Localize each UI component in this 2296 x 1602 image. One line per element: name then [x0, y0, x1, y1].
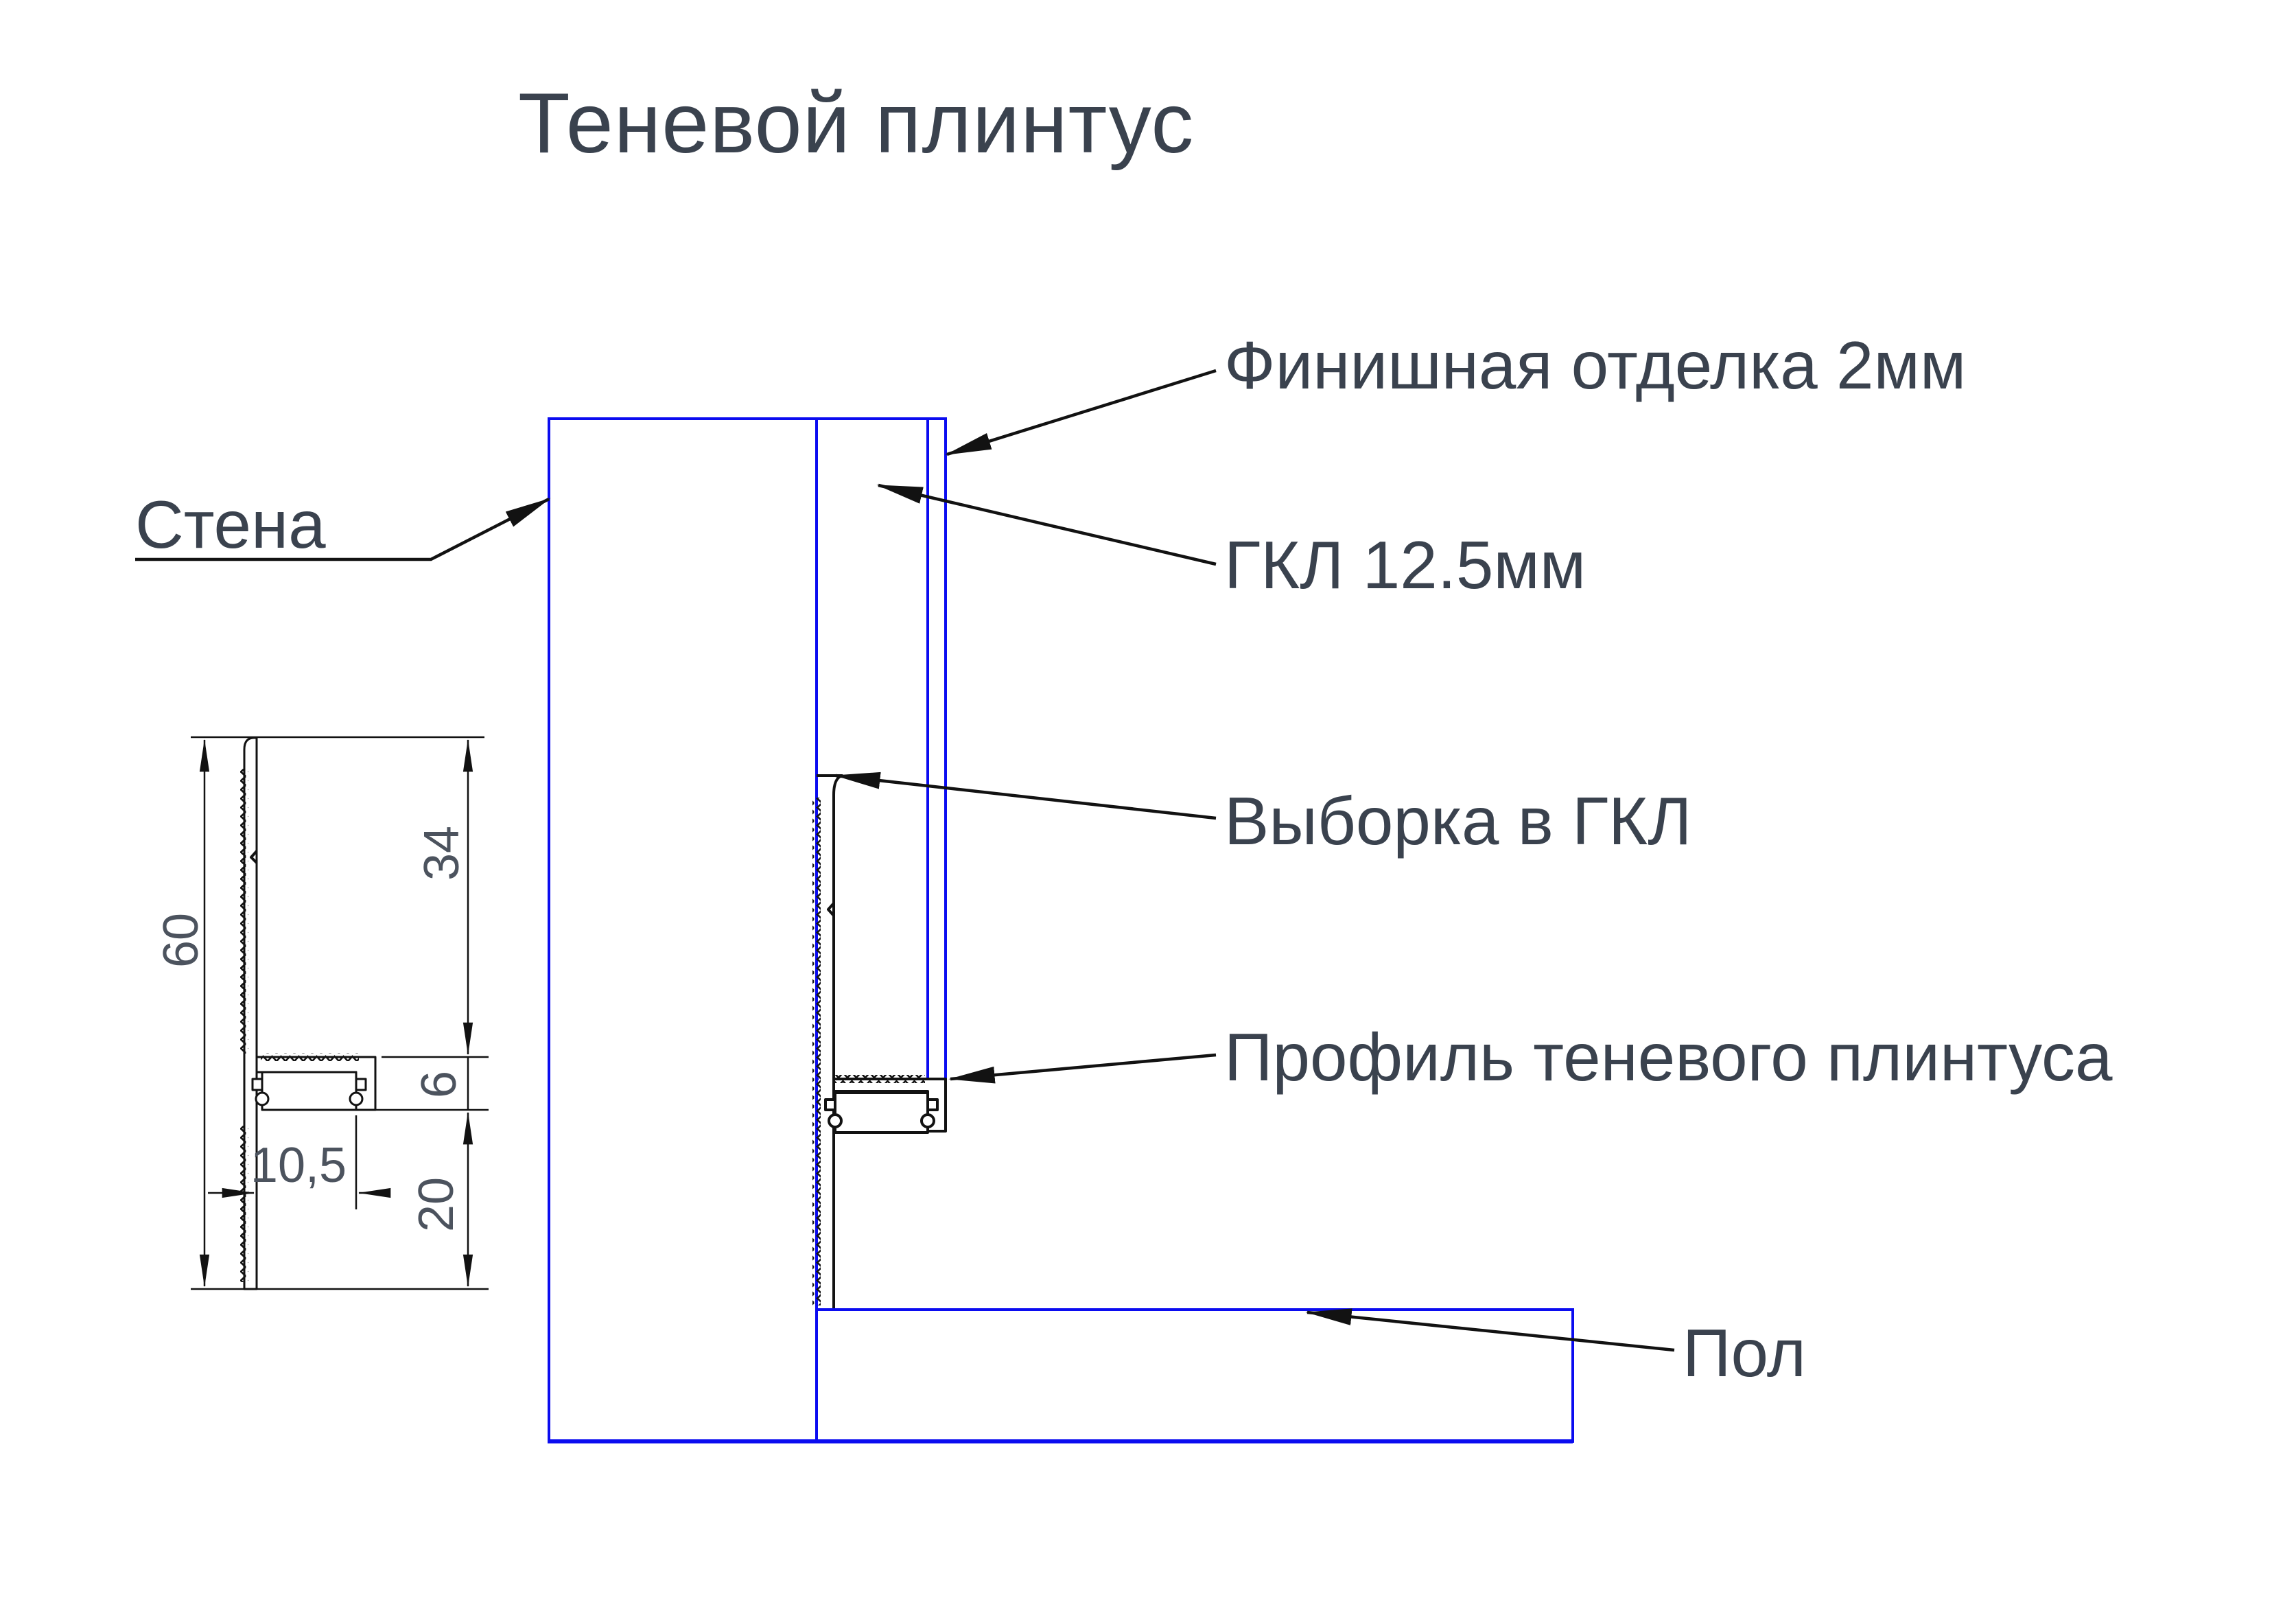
detail-led-channel	[253, 1072, 366, 1110]
dim-6: 6	[412, 1071, 467, 1098]
dim-20: 20	[409, 1177, 464, 1232]
profile-leg-serration	[812, 798, 821, 1305]
detail-profile	[240, 738, 375, 1289]
leader-cutout	[836, 776, 1216, 818]
drawing-canvas: 60 34 6 20 10,5 Теневой плинтус Стена Фи…	[0, 0, 2296, 1602]
wall-section	[549, 419, 817, 1441]
label-profile: Профиль теневого плинтуса	[1224, 1023, 2112, 1091]
detail-flange-serration	[261, 1053, 359, 1061]
leaders	[135, 371, 1674, 1350]
leader-floor	[1307, 1312, 1674, 1350]
dim-105: 10,5	[250, 1138, 347, 1193]
label-finish: Финишная отделка 2мм	[1224, 332, 1966, 399]
label-floor: Пол	[1683, 1319, 1806, 1386]
profile-flange-serration	[833, 1075, 925, 1083]
finish-layer	[928, 419, 946, 1079]
plinth-profile-main	[812, 776, 946, 1308]
profile-led-channel	[825, 1093, 937, 1133]
technical-drawing: 60 34 6 20 10,5	[0, 0, 2296, 1602]
dim-60: 60	[154, 913, 209, 968]
label-wall: Стена	[135, 491, 326, 558]
detail-leg-serration-upper	[240, 769, 248, 1054]
label-cutout: Выборка в ГКЛ	[1224, 787, 1691, 855]
detail-view: 60 34 6 20 10,5	[154, 737, 489, 1289]
detail-leg-serration-lower	[240, 1126, 248, 1282]
page-title: Теневой плинтус	[518, 81, 1194, 166]
dim-34: 34	[414, 826, 469, 881]
leader-finish	[947, 371, 1216, 454]
label-gkl: ГКЛ 12.5мм	[1224, 531, 1586, 599]
leader-profile	[950, 1055, 1216, 1079]
